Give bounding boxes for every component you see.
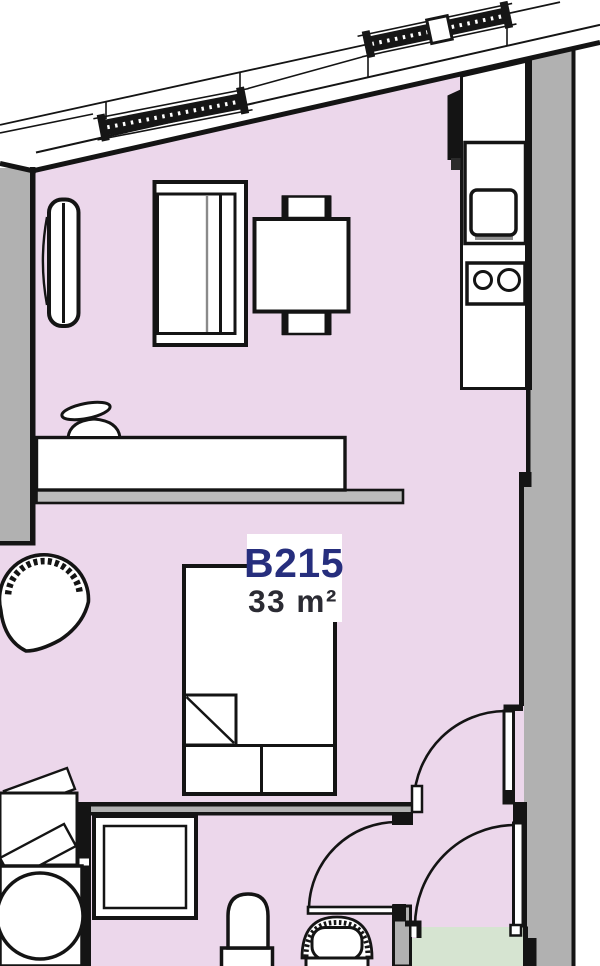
svg-text:B215: B215: [244, 540, 344, 586]
svg-text:33 m²: 33 m²: [248, 583, 338, 619]
